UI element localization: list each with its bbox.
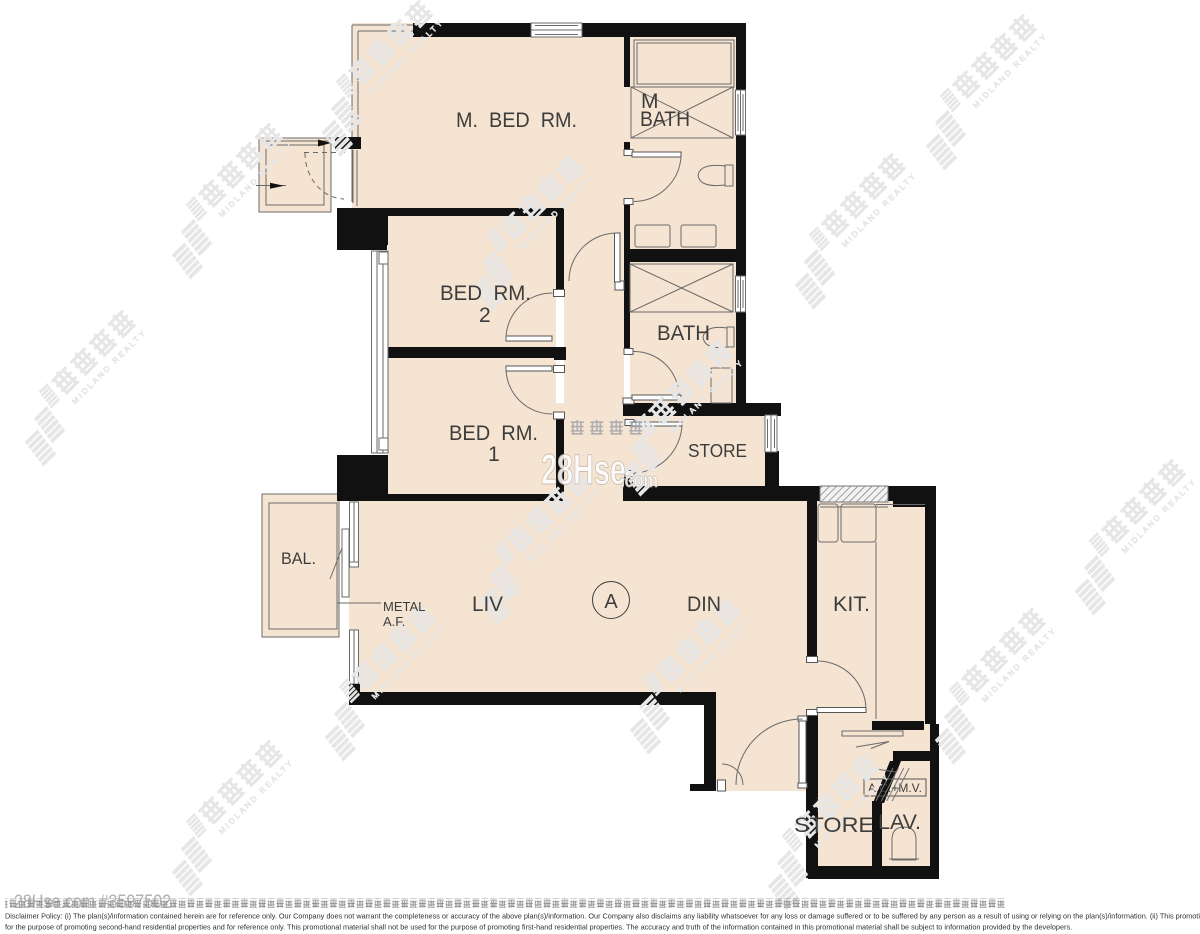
svg-text:28Hse: 28Hse <box>541 445 626 493</box>
svg-text:A: A <box>604 591 618 613</box>
svg-text:BED RM.: BED RM. <box>440 282 531 305</box>
svg-text:28Hse.com #3597502: 28Hse.com #3597502 <box>14 892 171 913</box>
svg-text:BATH: BATH <box>657 322 710 345</box>
svg-text:METAL: METAL <box>383 599 425 614</box>
svg-text:DIN: DIN <box>687 593 721 616</box>
svg-text:1: 1 <box>488 443 500 466</box>
svg-text:A.F.: A.F. <box>383 614 405 629</box>
svg-text:.com: .com <box>620 468 658 491</box>
svg-text:2: 2 <box>479 304 491 327</box>
svg-text:STORE: STORE <box>794 814 874 837</box>
svg-text:Disclaimer Policy: (i) The pla: Disclaimer Policy: (i) The plan(s)/infor… <box>5 912 1200 921</box>
svg-text:KIT.: KIT. <box>833 593 870 616</box>
svg-text:for the purpose of promoting s: for the purpose of promoting second-hand… <box>5 923 1072 932</box>
svg-text:BATH: BATH <box>640 108 690 131</box>
svg-text:LAV.: LAV. <box>878 811 921 834</box>
svg-text:BAL.: BAL. <box>281 549 316 568</box>
svg-text:STORE: STORE <box>688 441 747 461</box>
svg-text:M. BED RM.: M. BED RM. <box>456 109 577 132</box>
svg-text:LIV: LIV <box>472 593 503 616</box>
svg-text:BED RM.: BED RM. <box>449 422 538 445</box>
